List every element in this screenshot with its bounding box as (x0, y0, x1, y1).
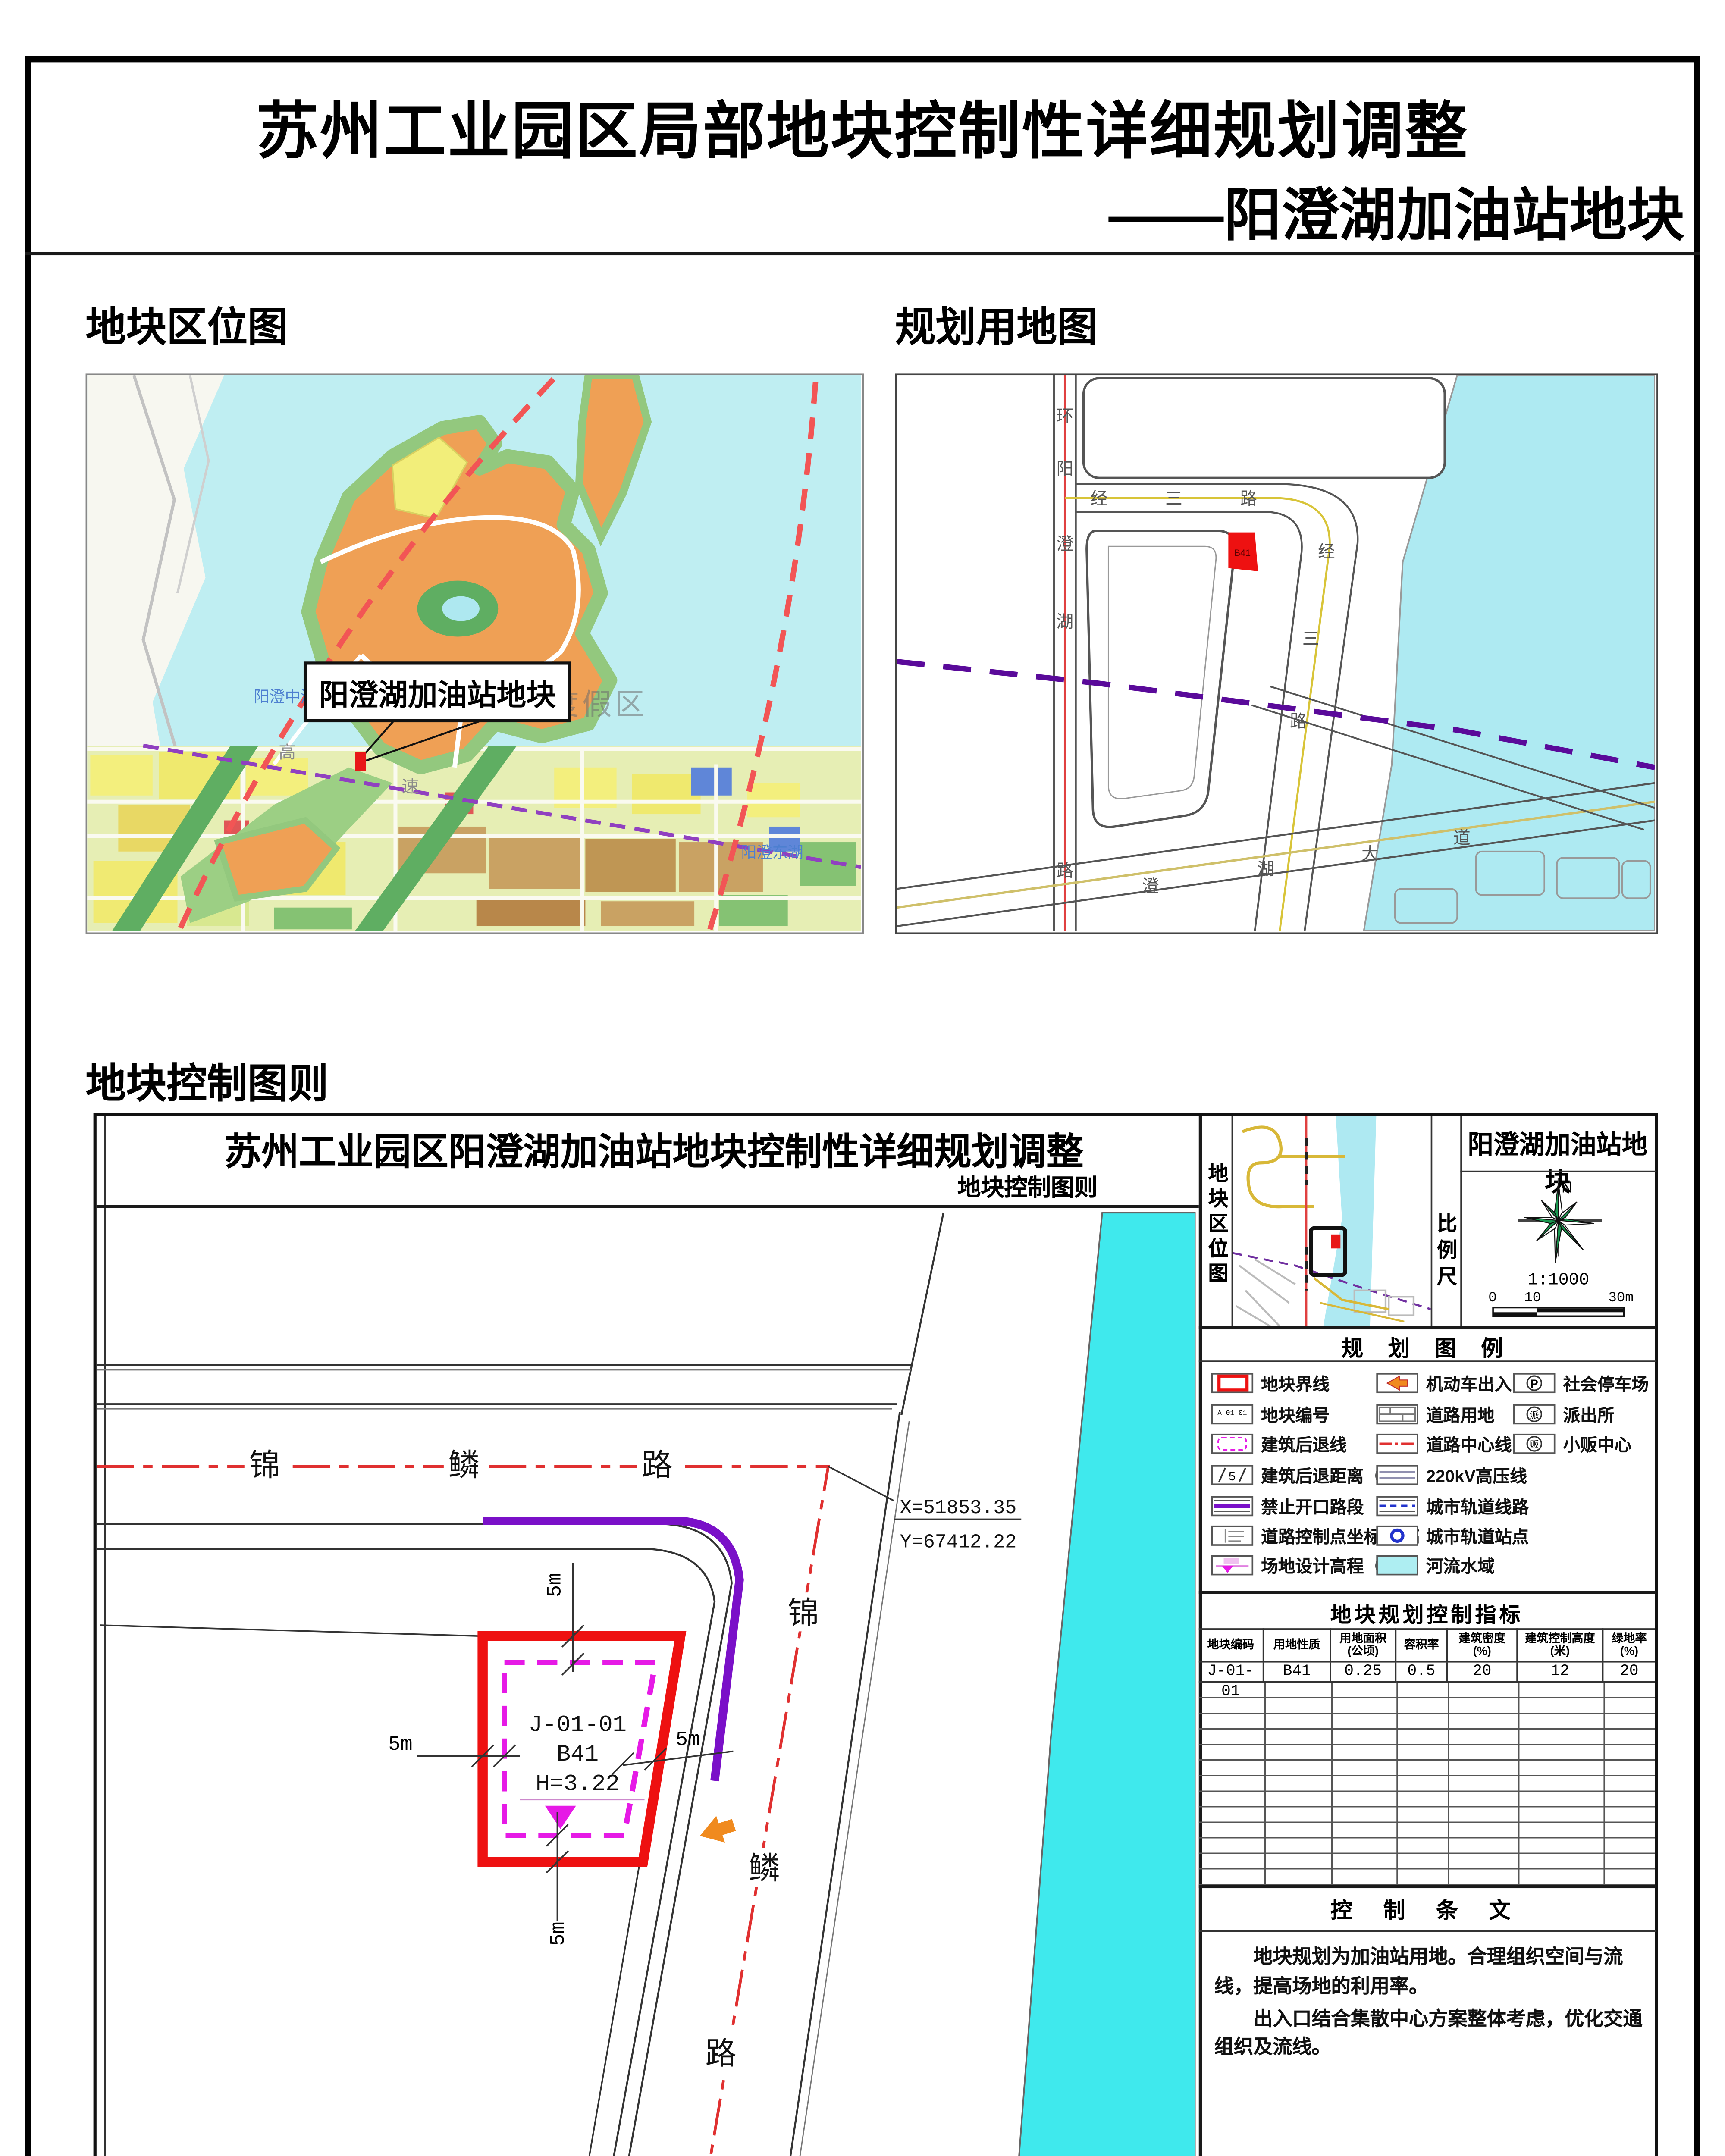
svg-text:澄: 澄 (1142, 877, 1159, 896)
page-title: 苏州工业园区局部地块控制性详细规划调整 (31, 81, 1694, 171)
page-subtitle: ——阳澄湖加油站地块 (31, 168, 1684, 252)
indicators-empty-rows (1199, 1683, 1655, 1885)
plan-subtitle: 地块控制图则 (669, 1171, 1098, 1203)
block-north (1084, 378, 1445, 478)
road-h-labels: 锦 鳞 路 (245, 1442, 677, 1482)
svg-text:澄: 澄 (1056, 534, 1073, 553)
control-plan-heading: 地块控制图则 (86, 1052, 329, 1110)
legend-title: 规 划 图 例 (1199, 1332, 1655, 1363)
plot-boundary-icon (1211, 1373, 1253, 1393)
svg-text:鳞: 鳞 (749, 1851, 780, 1886)
svg-text:环: 环 (1056, 407, 1073, 426)
site-elevation-icon (1211, 1555, 1253, 1575)
road-control-point: X=51853.35 Y=67412.22 (900, 1497, 1017, 1553)
plan-title: 苏州工业园区阳澄湖加油站地块控制性详细规划调整 (117, 1121, 1191, 1175)
svg-text:5: 5 (1228, 1470, 1236, 1483)
hawker-icon: 贩 (1513, 1434, 1555, 1454)
svg-text:J-01-01: J-01-01 (529, 1712, 627, 1738)
svg-text:5m: 5m (547, 1921, 570, 1946)
metro-station-icon (1376, 1526, 1418, 1546)
title-separator (25, 252, 1700, 255)
svg-text:路: 路 (705, 2037, 736, 2071)
plan-drawing: X=51853.35 Y=67412.22 J-01-01 B41 H=3.22… (97, 1208, 1196, 2156)
metro-line-icon (1376, 1496, 1418, 1516)
svg-text:5m: 5m (388, 1733, 412, 1756)
expressway-char: 高 (279, 743, 296, 762)
svg-text:B41: B41 (557, 1742, 599, 1768)
svg-text:Y=67412.22: Y=67412.22 (900, 1531, 1017, 1553)
road-land-icon (1376, 1404, 1418, 1424)
svg-text:P: P (1531, 1377, 1538, 1390)
svg-text:H=3.22: H=3.22 (536, 1771, 620, 1798)
svg-text:路: 路 (1056, 861, 1073, 880)
indicators-title: 地块规划控制指标 (1199, 1597, 1655, 1628)
minimap-site-marker (1331, 1235, 1341, 1248)
panel-scale-label: 比例尺 (1432, 1186, 1460, 1317)
svg-text:三: 三 (1165, 489, 1182, 508)
location-map: 阳澄中湖 阳澄东湖 高 速 阳澄湖半岛旅游度假区 阳澄湖加油站地块 (86, 373, 864, 934)
svg-text:路: 路 (1290, 712, 1307, 731)
landuse-map: B41 环 阳 澄 湖 路 经 三 路 经 三 路 (895, 373, 1658, 934)
landuse-map-canvas: B41 环 阳 澄 湖 路 经 三 路 经 三 路 (897, 375, 1655, 931)
provisions-title: 控 制 条 文 (1199, 1894, 1655, 1925)
north-label: N (1562, 1178, 1573, 1196)
plot-b41-label: B41 (1234, 547, 1251, 558)
provisions-text: 地块规划为加油站用地。合理组织空间与流线，提高场地的利用率。 出入口结合集散中心… (1214, 1943, 1644, 2065)
plot-code-icon: A-01-01 (1211, 1404, 1253, 1424)
svg-text:三: 三 (1302, 630, 1320, 649)
setback-distance-icon: 5 (1211, 1465, 1253, 1485)
inner-lake (442, 596, 480, 621)
location-map-heading: 地块区位图 (86, 296, 288, 354)
panel-minimap (1233, 1116, 1430, 1326)
road-centerline-icon (1376, 1434, 1418, 1454)
svg-text:10: 10 (1524, 1290, 1541, 1306)
svg-text:锦: 锦 (788, 1596, 819, 1630)
document-page: 苏州工业园区局部地块控制性详细规划调整 ——阳澄湖加油站地块 地块区位图 规划用… (0, 0, 1725, 2156)
svg-text:经: 经 (1091, 489, 1108, 508)
svg-text:X=51853.35: X=51853.35 (900, 1497, 1017, 1519)
vehicle-entrance-icon (1376, 1373, 1418, 1393)
water-area-icon (1376, 1555, 1418, 1575)
svg-text:派: 派 (1530, 1410, 1539, 1420)
location-map-canvas: 阳澄中湖 阳澄东湖 高 速 阳澄湖半岛旅游度假区 阳澄湖加油站地块 (87, 375, 861, 931)
panel-side-label: 地块区位图 (1200, 1127, 1231, 1322)
police-icon: 派 (1513, 1404, 1555, 1424)
scale-ratio: 1:1000 (1527, 1270, 1589, 1289)
svg-text:湖: 湖 (1257, 860, 1274, 879)
svg-text:路: 路 (1240, 489, 1257, 508)
control-point-icon (1211, 1526, 1253, 1546)
svg-text:贩: 贩 (1530, 1439, 1539, 1450)
panel-compass: N 1:1000 0 10 30m (1462, 1172, 1656, 1326)
parking-icon: P (1513, 1373, 1555, 1393)
svg-text:路: 路 (641, 1448, 672, 1482)
landuse-map-heading: 规划用地图 (895, 296, 1098, 354)
river (1010, 1213, 1196, 2156)
callout-label: 阳澄湖加油站地块 (319, 678, 556, 711)
indicators-table: 地块编码 用地性质 用地面积 (公顷) 容积率 建筑密度 (%) 建筑控制高度 … (1199, 1628, 1655, 1683)
scale-bar: 0 10 30m (1488, 1290, 1633, 1316)
svg-text:道: 道 (1453, 829, 1471, 848)
svg-text:鳞: 鳞 (448, 1448, 480, 1482)
table-row: J-01-01 (1199, 1663, 1264, 1683)
jingsan-v-label: 经 三 路 (1290, 542, 1335, 731)
svg-text:经: 经 (1318, 542, 1335, 561)
svg-text:阳: 阳 (1056, 460, 1073, 479)
svg-text:5m: 5m (544, 1573, 567, 1597)
no-access-icon (1211, 1496, 1253, 1516)
site-marker (355, 752, 366, 771)
svg-text:大: 大 (1361, 844, 1379, 863)
svg-text:湖: 湖 (1056, 612, 1073, 631)
svg-text:5m: 5m (676, 1729, 700, 1752)
entrance-arrow-icon (696, 1811, 738, 1849)
expressway-char: 速 (401, 777, 419, 796)
svg-text:0: 0 (1488, 1290, 1497, 1306)
svg-text:30m: 30m (1608, 1290, 1633, 1306)
powerline-icon (1376, 1465, 1418, 1485)
svg-text:锦: 锦 (249, 1448, 280, 1482)
lake-label-east: 阳澄东湖 (741, 843, 803, 861)
setback-line-icon (1211, 1434, 1253, 1454)
